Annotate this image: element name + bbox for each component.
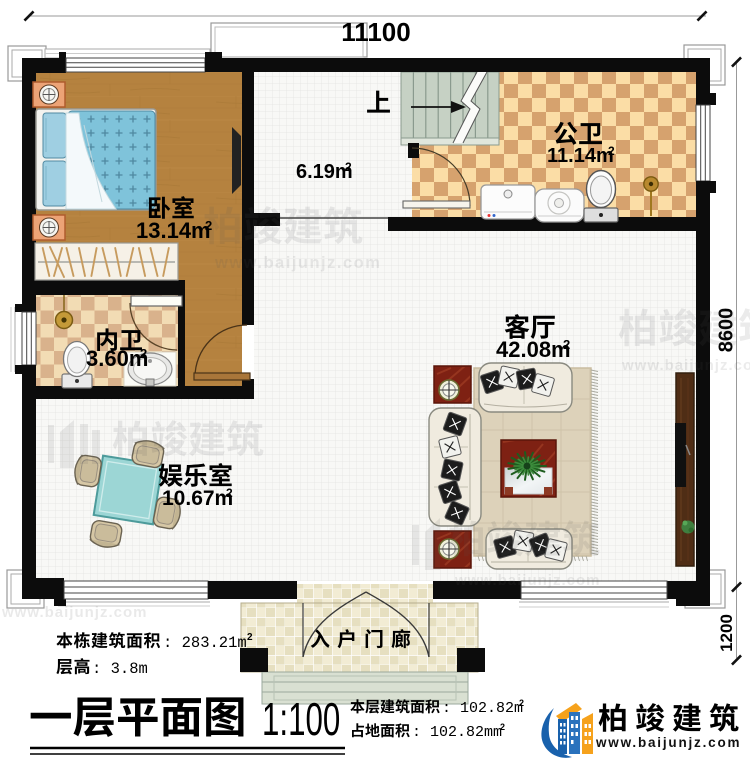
svg-text:2: 2 xyxy=(345,160,352,174)
svg-text:2: 2 xyxy=(519,698,524,708)
svg-text:www.baijunjz.com: www.baijunjz.com xyxy=(454,572,600,589)
svg-text:2: 2 xyxy=(608,144,615,158)
svg-text:www.baijunjz.com: www.baijunjz.com xyxy=(621,357,750,374)
svg-text:: 102.82m: : 102.82m xyxy=(442,700,523,717)
svg-text:2: 2 xyxy=(500,722,505,732)
svg-text:1200: 1200 xyxy=(717,614,736,652)
svg-text:: 283.21m: : 283.21m xyxy=(163,634,247,652)
svg-text:2: 2 xyxy=(226,486,233,500)
svg-text:2: 2 xyxy=(140,346,147,361)
svg-text:2: 2 xyxy=(205,218,212,233)
svg-text:www.baijunjz.com: www.baijunjz.com xyxy=(214,254,381,272)
svg-text:10.67m: 10.67m xyxy=(162,487,233,510)
svg-text:2: 2 xyxy=(563,337,570,352)
svg-text:: 102.82mm: : 102.82mm xyxy=(412,724,502,741)
svg-text:2: 2 xyxy=(247,632,253,643)
svg-text:11.14m: 11.14m xyxy=(547,145,614,167)
svg-text:11100: 11100 xyxy=(341,17,410,47)
svg-text:www.baijunjz.com: www.baijunjz.com xyxy=(595,735,741,750)
svg-text:42.08m: 42.08m xyxy=(496,337,571,362)
svg-text:1:100: 1:100 xyxy=(262,694,340,745)
svg-text:www.baijunjz.com: www.baijunjz.com xyxy=(1,604,147,621)
svg-text:13.14m: 13.14m xyxy=(136,218,211,243)
svg-text:: 3.8m: : 3.8m xyxy=(92,660,148,678)
